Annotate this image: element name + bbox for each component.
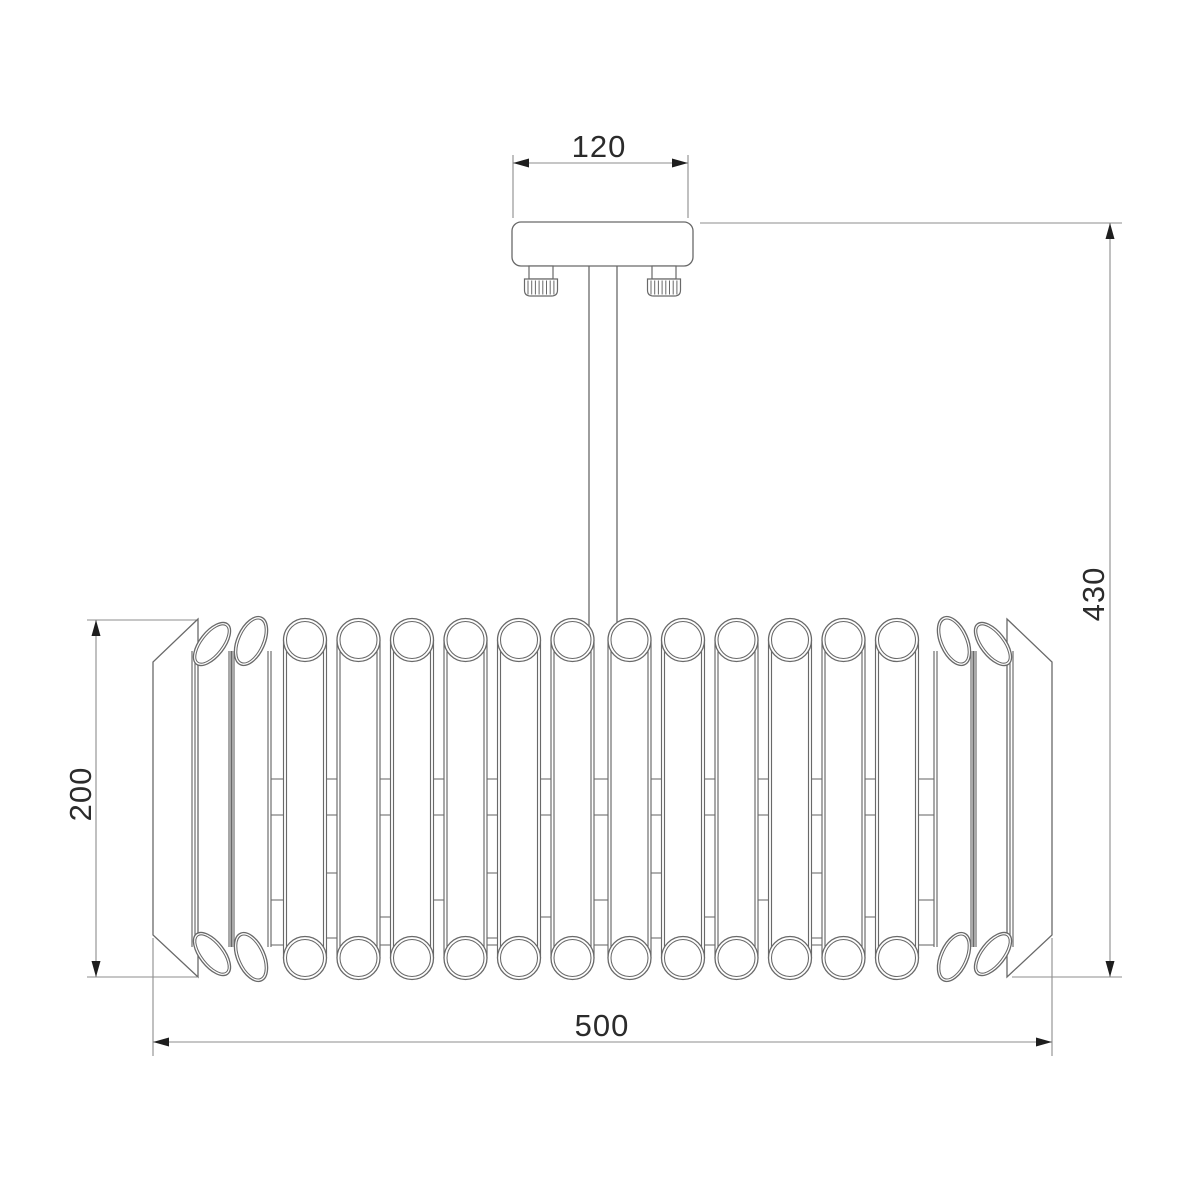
- crystal-tube-end: [551, 937, 594, 980]
- mounting-screw-right: [648, 266, 681, 296]
- crystal-tube-end: [284, 619, 327, 662]
- dimension-arrow: [92, 620, 101, 636]
- crystal-tube-end: [662, 937, 705, 980]
- stem-rod: [589, 266, 617, 640]
- dim-label-shade-width: 500: [575, 1008, 630, 1043]
- crystal-tube-end: [822, 937, 865, 980]
- dim-label-total-height: 430: [1076, 567, 1111, 622]
- screw-neck: [529, 266, 553, 279]
- crystal-tube-end: [284, 937, 327, 980]
- crystal-tube-end: [876, 619, 919, 662]
- dimension-canopy-width: 120: [513, 129, 688, 218]
- crystal-tube-end: [498, 619, 541, 662]
- dimension-arrow: [1106, 223, 1115, 239]
- crystal-tube-end: [391, 937, 434, 980]
- dim-label-canopy-width: 120: [572, 129, 627, 164]
- crystal-tube-end-tilted: [228, 928, 275, 987]
- dimension-arrow: [672, 159, 688, 168]
- crystal-tube-end: [608, 937, 651, 980]
- end-panel-left: [153, 619, 198, 977]
- dimension-arrow: [1036, 1038, 1052, 1047]
- canopy-plate: [512, 222, 693, 266]
- screw-knurled-cap: [525, 279, 558, 296]
- crystal-tube-end: [444, 619, 487, 662]
- shade-drum: [153, 612, 1052, 987]
- crystal-tube-end: [391, 619, 434, 662]
- crystal-tube-end: [769, 619, 812, 662]
- crystal-tube-end: [715, 937, 758, 980]
- crystal-tube-end: [608, 619, 651, 662]
- crystal-tube-end: [662, 619, 705, 662]
- dimension-arrow: [153, 1038, 169, 1047]
- dimension-arrow: [1106, 961, 1115, 977]
- crystal-tube-end: [876, 937, 919, 980]
- crystal-tube-end: [822, 619, 865, 662]
- crystal-tube-end-tilted: [931, 612, 978, 671]
- crystal-tube-end: [337, 937, 380, 980]
- crystal-tube-end-tilted: [228, 612, 275, 671]
- end-panel-right: [1007, 619, 1052, 977]
- crystal-tube-end: [715, 619, 758, 662]
- crystal-tube-end: [444, 937, 487, 980]
- dim-label-shade-height: 200: [63, 767, 98, 822]
- drawing-canvas: 120 430 200 500: [0, 0, 1200, 1200]
- crystal-tube-end: [337, 619, 380, 662]
- screw-neck: [652, 266, 676, 279]
- ceiling-canopy: [512, 222, 693, 266]
- mounting-screw-left: [525, 266, 558, 296]
- crystal-tube-end: [498, 937, 541, 980]
- dimension-arrow: [513, 159, 529, 168]
- dimension-total-height: 430: [700, 223, 1122, 977]
- technical-drawing: 120 430 200 500: [0, 0, 1200, 1200]
- crystal-tube-end: [551, 619, 594, 662]
- crystal-tube-end-tilted: [931, 928, 978, 987]
- screw-knurled-cap: [648, 279, 681, 296]
- dimension-arrow: [92, 961, 101, 977]
- crystal-tube-end: [769, 937, 812, 980]
